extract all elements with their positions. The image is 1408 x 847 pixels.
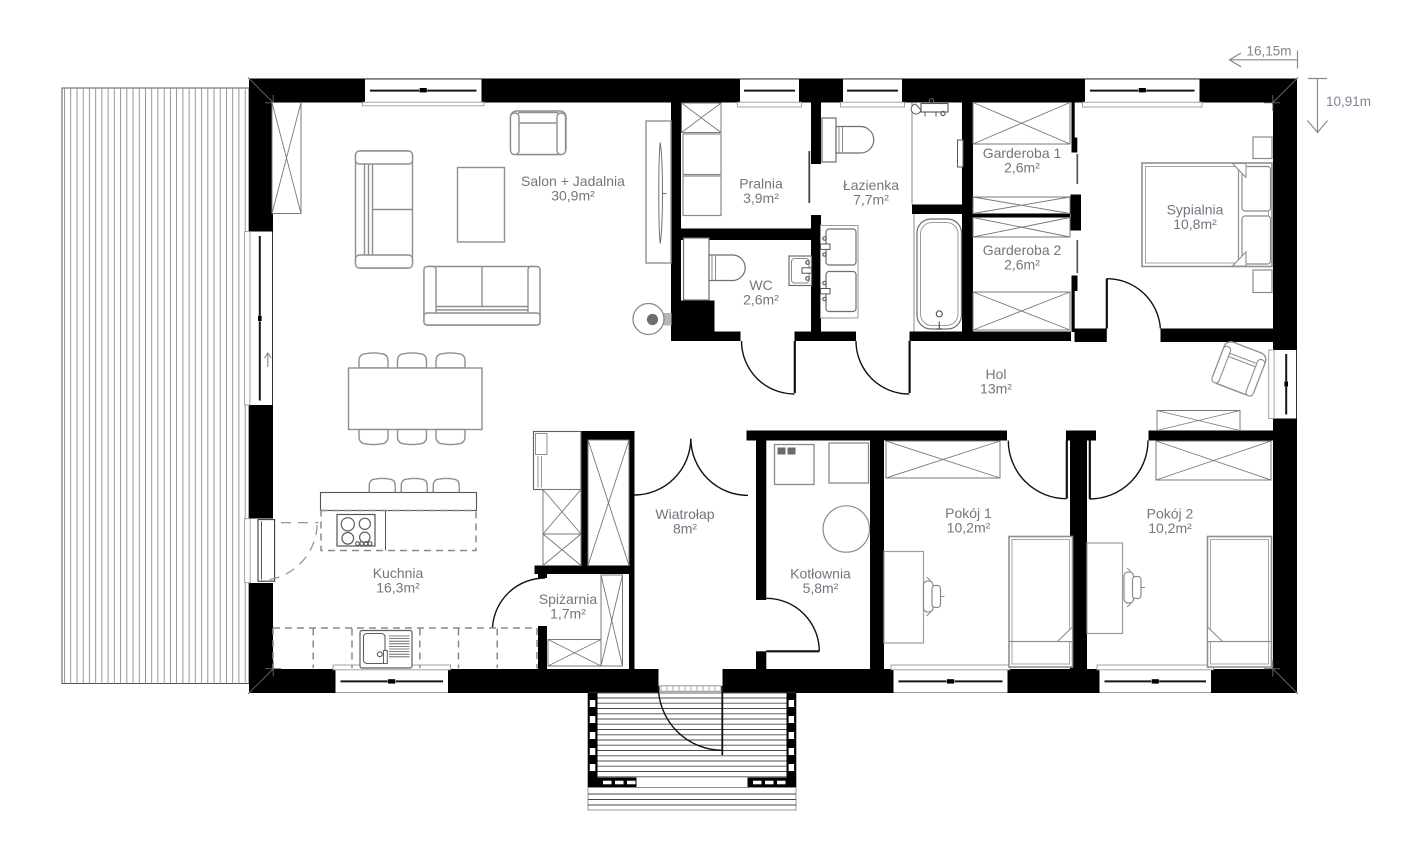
svg-text:8m²: 8m² [673,521,697,537]
svg-text:1,7m²: 1,7m² [550,606,586,622]
svg-text:10,2m²: 10,2m² [1148,520,1192,536]
svg-text:10,91m: 10,91m [1326,94,1371,109]
svg-text:16,3m²: 16,3m² [376,580,420,596]
svg-text:2,6m²: 2,6m² [743,292,779,308]
svg-text:13m²: 13m² [980,381,1012,397]
svg-text:30,9m²: 30,9m² [551,188,595,204]
svg-text:5,8m²: 5,8m² [803,580,839,596]
svg-text:10,8m²: 10,8m² [1173,216,1217,232]
svg-text:2,6m²: 2,6m² [1004,257,1040,273]
svg-text:10,2m²: 10,2m² [947,520,991,536]
svg-text:3,9m²: 3,9m² [743,190,779,206]
svg-text:2,6m²: 2,6m² [1004,160,1040,176]
svg-text:16,15m: 16,15m [1247,44,1292,59]
svg-text:7,7m²: 7,7m² [853,192,889,208]
